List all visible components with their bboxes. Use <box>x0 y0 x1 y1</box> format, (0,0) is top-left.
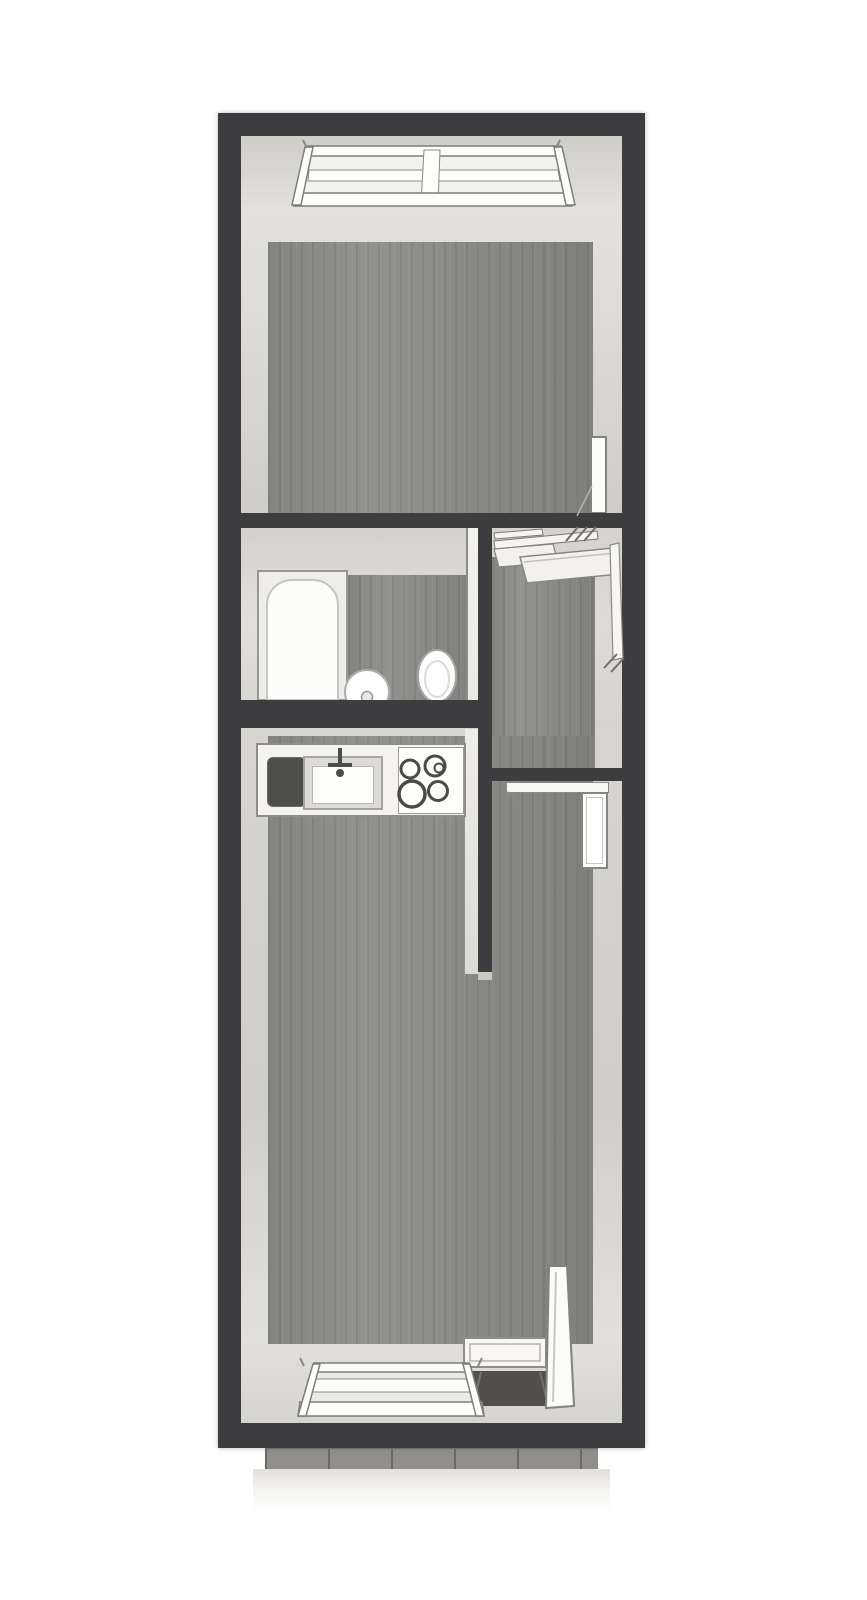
balcony-fade <box>253 1469 610 1513</box>
outer-wall <box>218 113 645 1448</box>
balcony <box>265 1448 598 1469</box>
floor-plan-canvas <box>0 0 867 1600</box>
